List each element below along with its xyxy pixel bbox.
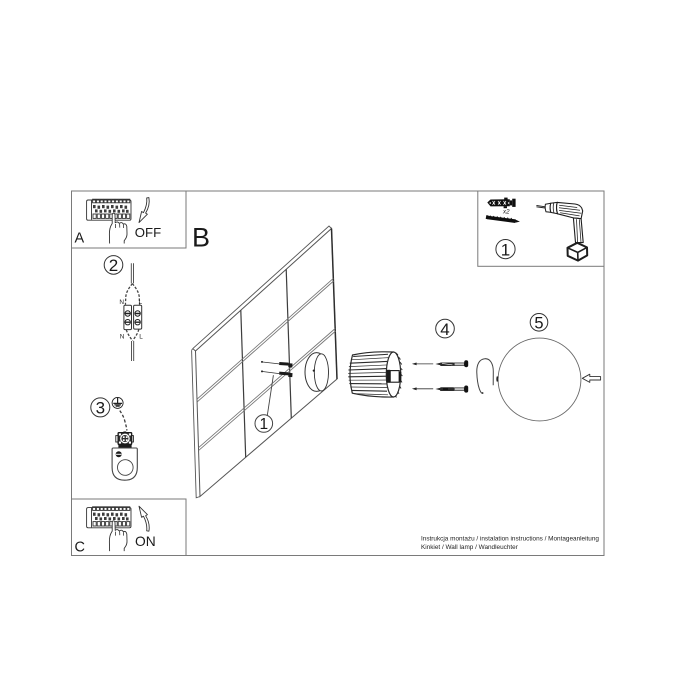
svg-text:C: C (75, 540, 85, 556)
svg-text:4: 4 (440, 320, 449, 339)
svg-text:x2: x2 (502, 209, 510, 216)
svg-text:1: 1 (501, 240, 510, 259)
svg-text:N: N (120, 334, 125, 341)
svg-text:Kinkiet / Wall lamp / Wandleuc: Kinkiet / Wall lamp / Wandleuchter (421, 544, 519, 551)
svg-text:N: N (119, 299, 124, 306)
svg-text:B: B (192, 223, 210, 253)
svg-text:OFF: OFF (135, 225, 161, 240)
svg-text:Instrukcja montażu / instalati: Instrukcja montażu / instalation instruc… (421, 536, 599, 543)
svg-text:A: A (75, 231, 85, 247)
svg-text:1: 1 (259, 416, 268, 433)
svg-text:5: 5 (534, 314, 543, 332)
svg-text:L: L (139, 334, 143, 341)
svg-text:ON: ON (135, 534, 156, 549)
svg-text:3: 3 (96, 399, 105, 418)
svg-text:2: 2 (109, 256, 118, 275)
